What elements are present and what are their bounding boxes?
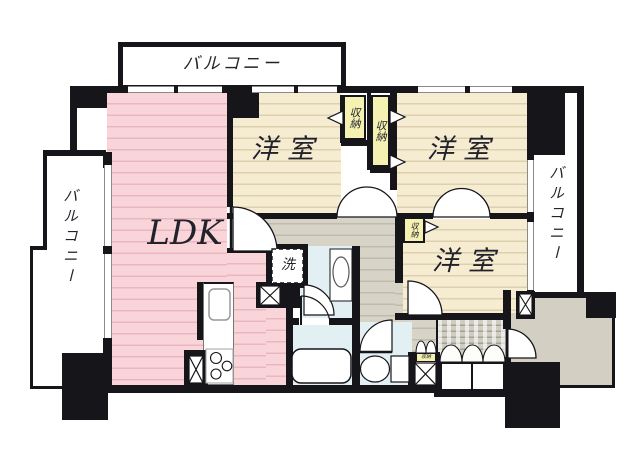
window-bedroom-a1 <box>252 86 294 93</box>
wall-porch-bottom <box>558 385 615 388</box>
room-bathroom <box>286 325 358 387</box>
wall-balcony-left-outer2 <box>30 246 33 389</box>
closet-c-label: 収納 <box>410 222 418 238</box>
laundry-label: 洗 <box>276 258 300 272</box>
window-ldk-top1 <box>128 86 174 93</box>
balcony-right-label: バルコニー <box>548 165 563 325</box>
window-bedroom-b-east <box>527 160 534 212</box>
entrance-step-line <box>436 315 438 362</box>
wall-bath-north2 <box>329 318 352 325</box>
bedroom-c-label: 洋室 <box>418 248 518 275</box>
balcony-top-label: バルコニー <box>130 56 335 73</box>
frame-shaft-balcony <box>516 291 535 319</box>
pillar-bedroom-a <box>227 93 259 118</box>
closet-a: 収納 <box>343 95 366 140</box>
pillar-bottom-left <box>62 353 108 420</box>
window-ldk-top2 <box>178 86 222 93</box>
wall-bottom-main <box>106 385 438 393</box>
wall-bedroom-a-east <box>340 95 345 143</box>
ldk-label: LDK <box>138 216 232 250</box>
frame-shaft-kitchen <box>184 350 208 387</box>
pillar-porch <box>586 292 616 318</box>
wall-toilet-east <box>408 352 416 387</box>
wall-kitchen-edge <box>197 282 203 340</box>
closet-e: 収納 <box>416 353 436 362</box>
room-toilet <box>358 322 412 387</box>
wall-closet-a-bottom <box>341 140 367 146</box>
window-bedroom-b2 <box>470 86 512 93</box>
wall-bedroom-a-south <box>227 213 337 219</box>
closet-c: 収納 <box>403 217 425 243</box>
room-ldk-extension2 <box>266 308 286 386</box>
pillar-bottom-right <box>505 362 560 428</box>
closet-a-label: 収納 <box>349 107 360 129</box>
wall-bath-north1 <box>286 318 299 325</box>
wall-closet-b-bottom <box>370 167 397 173</box>
closet-b: 収納 <box>371 95 390 167</box>
shaft-entrance-icon <box>415 363 436 385</box>
wall-balcony-left-top <box>43 150 106 156</box>
wall-balcony-left-bottom <box>30 386 64 389</box>
bedroom-a-label: 洋室 <box>238 136 336 163</box>
pillar-top-right <box>527 93 565 155</box>
floorplan: 収納 収納 収納 収納 収納 <box>0 0 640 455</box>
closet-e-label: 収納 <box>421 355 431 360</box>
wall-entrance-east1 <box>503 290 511 329</box>
balcony-left-label: バルコニー <box>62 188 77 348</box>
wall-porch-right <box>612 318 615 388</box>
bedroom-b-label: 洋室 <box>410 136 516 163</box>
window-ldk-west1 <box>104 165 112 246</box>
wall-corner-tl <box>70 86 107 108</box>
wall-closet-mid <box>367 93 371 170</box>
window-bedroom-a2 <box>298 86 337 93</box>
entrance-tile <box>438 315 505 362</box>
shoe-cabinet-divider <box>471 362 473 391</box>
window-ldk-west2 <box>104 254 112 338</box>
wall-balcony-right-outer <box>577 86 584 298</box>
wall-bedroom-c-west <box>395 213 403 283</box>
wall-closet-b-east <box>390 93 397 190</box>
wall-ldk-west2 <box>103 338 112 388</box>
wall-bedroom-c-south <box>395 313 511 320</box>
wall-ldk-west-mullion <box>103 246 112 254</box>
wall-bottom-entrance <box>434 389 512 397</box>
closet-b-label: 収納 <box>375 120 386 142</box>
wall-balcony-left-outer1 <box>43 150 47 250</box>
window-bedroom-c-east <box>527 222 534 290</box>
wall-wet-mid <box>352 246 360 387</box>
frame-shaft-a <box>256 282 300 308</box>
window-bedroom-b1 <box>418 86 465 93</box>
